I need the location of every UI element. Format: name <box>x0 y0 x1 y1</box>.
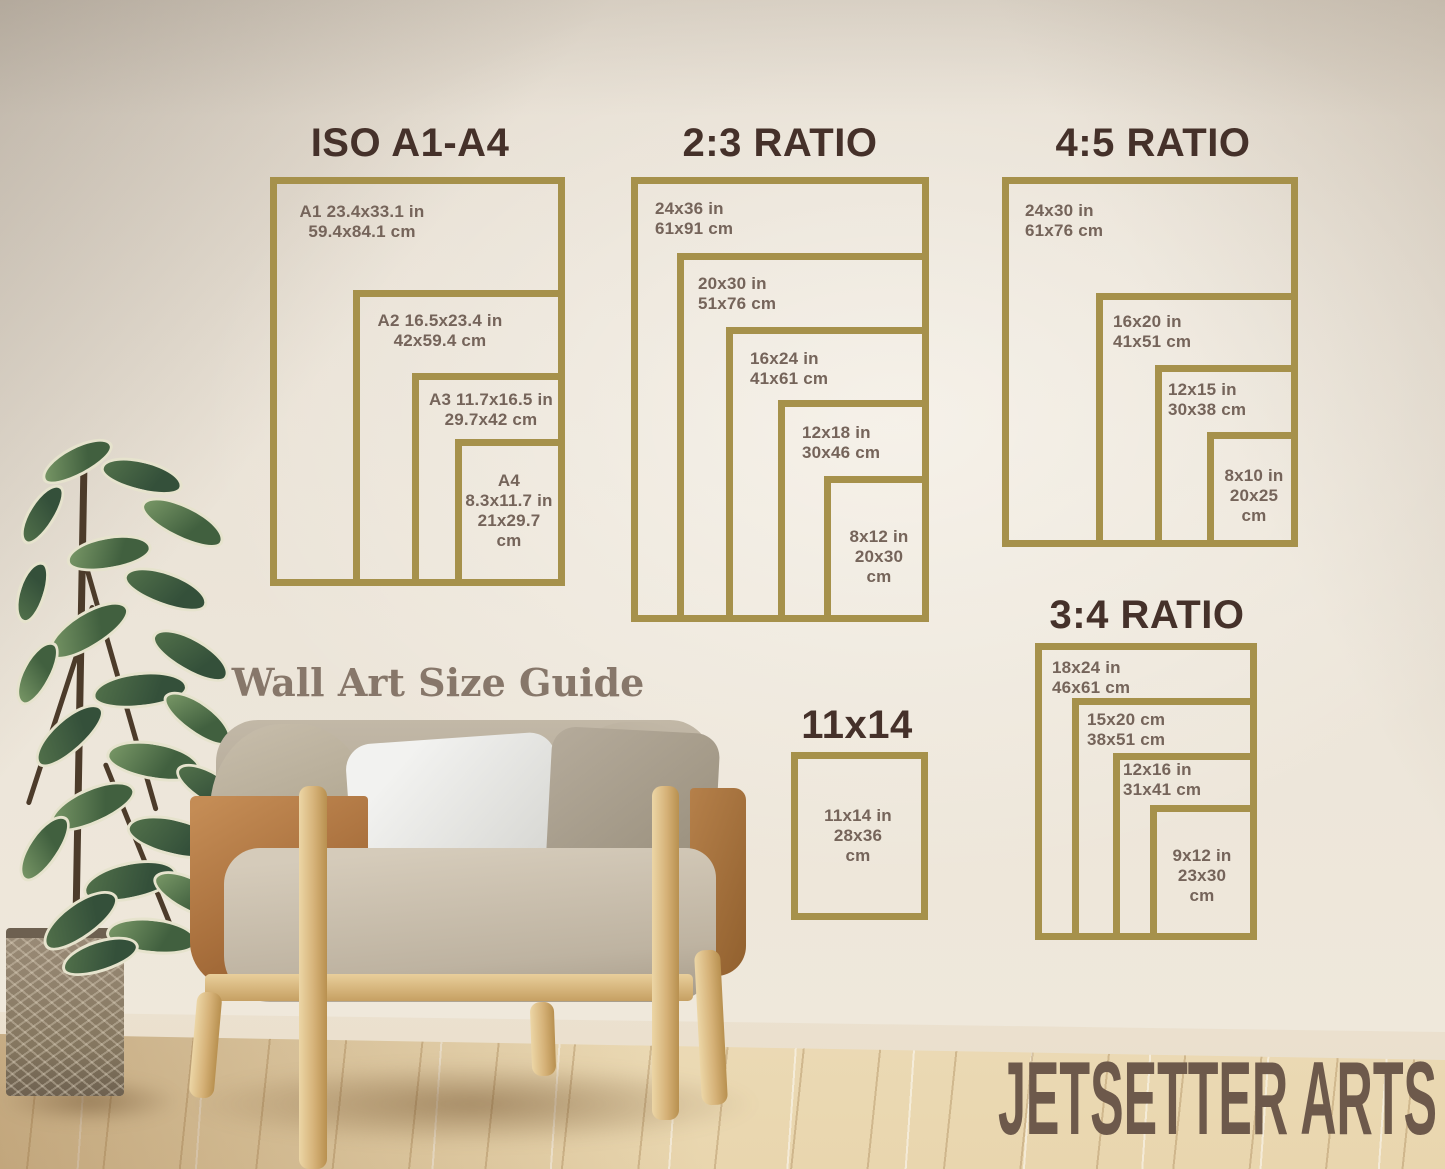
section-heading-4-5: 4:5 RATIO <box>1056 121 1251 166</box>
label-line: 12x15 in <box>1168 380 1246 400</box>
label-line: 42x59.4 cm <box>358 331 522 351</box>
frame-label-12x18: 12x18 in 30x46 cm <box>802 423 880 463</box>
label-line: 24x36 in <box>655 199 733 219</box>
chair-front-left-post <box>299 786 327 1169</box>
chair-wood-rail <box>205 974 693 1001</box>
label-line: 16x24 in <box>750 349 828 369</box>
label-line: 31x41 cm <box>1123 780 1201 800</box>
frame-label-18x24: 18x24 in 46x61 cm <box>1052 658 1130 698</box>
plant-leaf <box>7 635 66 711</box>
frame-label-16x20: 16x20 in 41x51 cm <box>1113 312 1191 352</box>
chair-center-leg <box>530 1002 557 1077</box>
label-line: 30x46 cm <box>802 443 880 463</box>
label-line: 23x30 <box>1142 866 1262 886</box>
brand-wordmark: JETSETTER ARTS <box>998 1040 1437 1159</box>
plant-leaf <box>97 450 186 501</box>
label-line: 12x16 in <box>1123 760 1201 780</box>
label-line: 18x24 in <box>1052 658 1130 678</box>
label-line: cm <box>798 846 918 866</box>
frame-label-8x10: 8x10 in 20x25 cm <box>1194 466 1314 526</box>
label-line: A2 16.5x23.4 in <box>358 311 522 331</box>
label-line: 20x30 <box>819 547 939 567</box>
frame-label-20x30: 20x30 in 51x76 cm <box>698 274 776 314</box>
wall-art-size-guide-poster: ISO A1-A4 A1 23.4x33.1 in 59.4x84.1 cm A… <box>0 0 1445 1169</box>
label-line: 61x76 cm <box>1025 221 1103 241</box>
label-line: 30x38 cm <box>1168 400 1246 420</box>
label-line: cm <box>1194 506 1314 526</box>
frame-label-15x20: 15x20 cm 38x51 cm <box>1087 710 1165 750</box>
section-heading-2-3: 2:3 RATIO <box>683 121 878 166</box>
plant-leaf <box>119 558 213 620</box>
frame-label-24x36: 24x36 in 61x91 cm <box>655 199 733 239</box>
section-heading-3-4: 3:4 RATIO <box>1050 593 1245 638</box>
plant-leaf <box>26 694 113 777</box>
label-line: 20x30 in <box>698 274 776 294</box>
label-line: 24x30 in <box>1025 201 1103 221</box>
section-heading-11x14: 11x14 <box>801 703 913 748</box>
frame-label-24x30: 24x30 in 61x76 cm <box>1025 201 1103 241</box>
plant-leaf <box>9 808 78 889</box>
label-line: 41x61 cm <box>750 369 828 389</box>
label-line: 51x76 cm <box>698 294 776 314</box>
label-line: 16x20 in <box>1113 312 1191 332</box>
label-line: 8x10 in <box>1194 466 1314 486</box>
label-line: A4 <box>444 471 574 491</box>
plant-leaf <box>12 478 72 551</box>
frame-label-a3: A3 11.7x16.5 in 29.7x42 cm <box>409 390 573 430</box>
label-line: 61x91 cm <box>655 219 733 239</box>
label-line: 41x51 cm <box>1113 332 1191 352</box>
chair-front-right-post <box>652 786 679 1120</box>
label-line: cm <box>819 567 939 587</box>
frame-label-8x12: 8x12 in 20x30 cm <box>819 527 939 587</box>
label-line: 21x29.7 <box>444 511 574 531</box>
label-line: 8x12 in <box>819 527 939 547</box>
frame-label-a4: A4 8.3x11.7 in 21x29.7 cm <box>444 471 574 551</box>
label-line: 15x20 cm <box>1087 710 1165 730</box>
label-line: 46x61 cm <box>1052 678 1130 698</box>
label-line: 9x12 in <box>1142 846 1262 866</box>
frame-label-12x16: 12x16 in 31x41 cm <box>1123 760 1201 800</box>
label-line: 8.3x11.7 in <box>444 491 574 511</box>
frame-label-12x15: 12x15 in 30x38 cm <box>1168 380 1246 420</box>
label-line: 28x36 <box>798 826 918 846</box>
label-line: cm <box>444 531 574 551</box>
label-line: A3 11.7x16.5 in <box>409 390 573 410</box>
label-line: cm <box>1142 886 1262 906</box>
label-line: 11x14 in <box>798 806 918 826</box>
frame-label-11x14: 11x14 in 28x36 cm <box>798 806 918 866</box>
label-line: 29.7x42 cm <box>409 410 573 430</box>
label-line: 20x25 <box>1194 486 1314 506</box>
frame-label-16x24: 16x24 in 41x61 cm <box>750 349 828 389</box>
frame-label-9x12: 9x12 in 23x30 cm <box>1142 846 1262 906</box>
label-line: 38x51 cm <box>1087 730 1165 750</box>
label-line: 12x18 in <box>802 423 880 443</box>
plant-leaf <box>9 557 55 627</box>
frame-label-a2: A2 16.5x23.4 in 42x59.4 cm <box>358 311 522 351</box>
